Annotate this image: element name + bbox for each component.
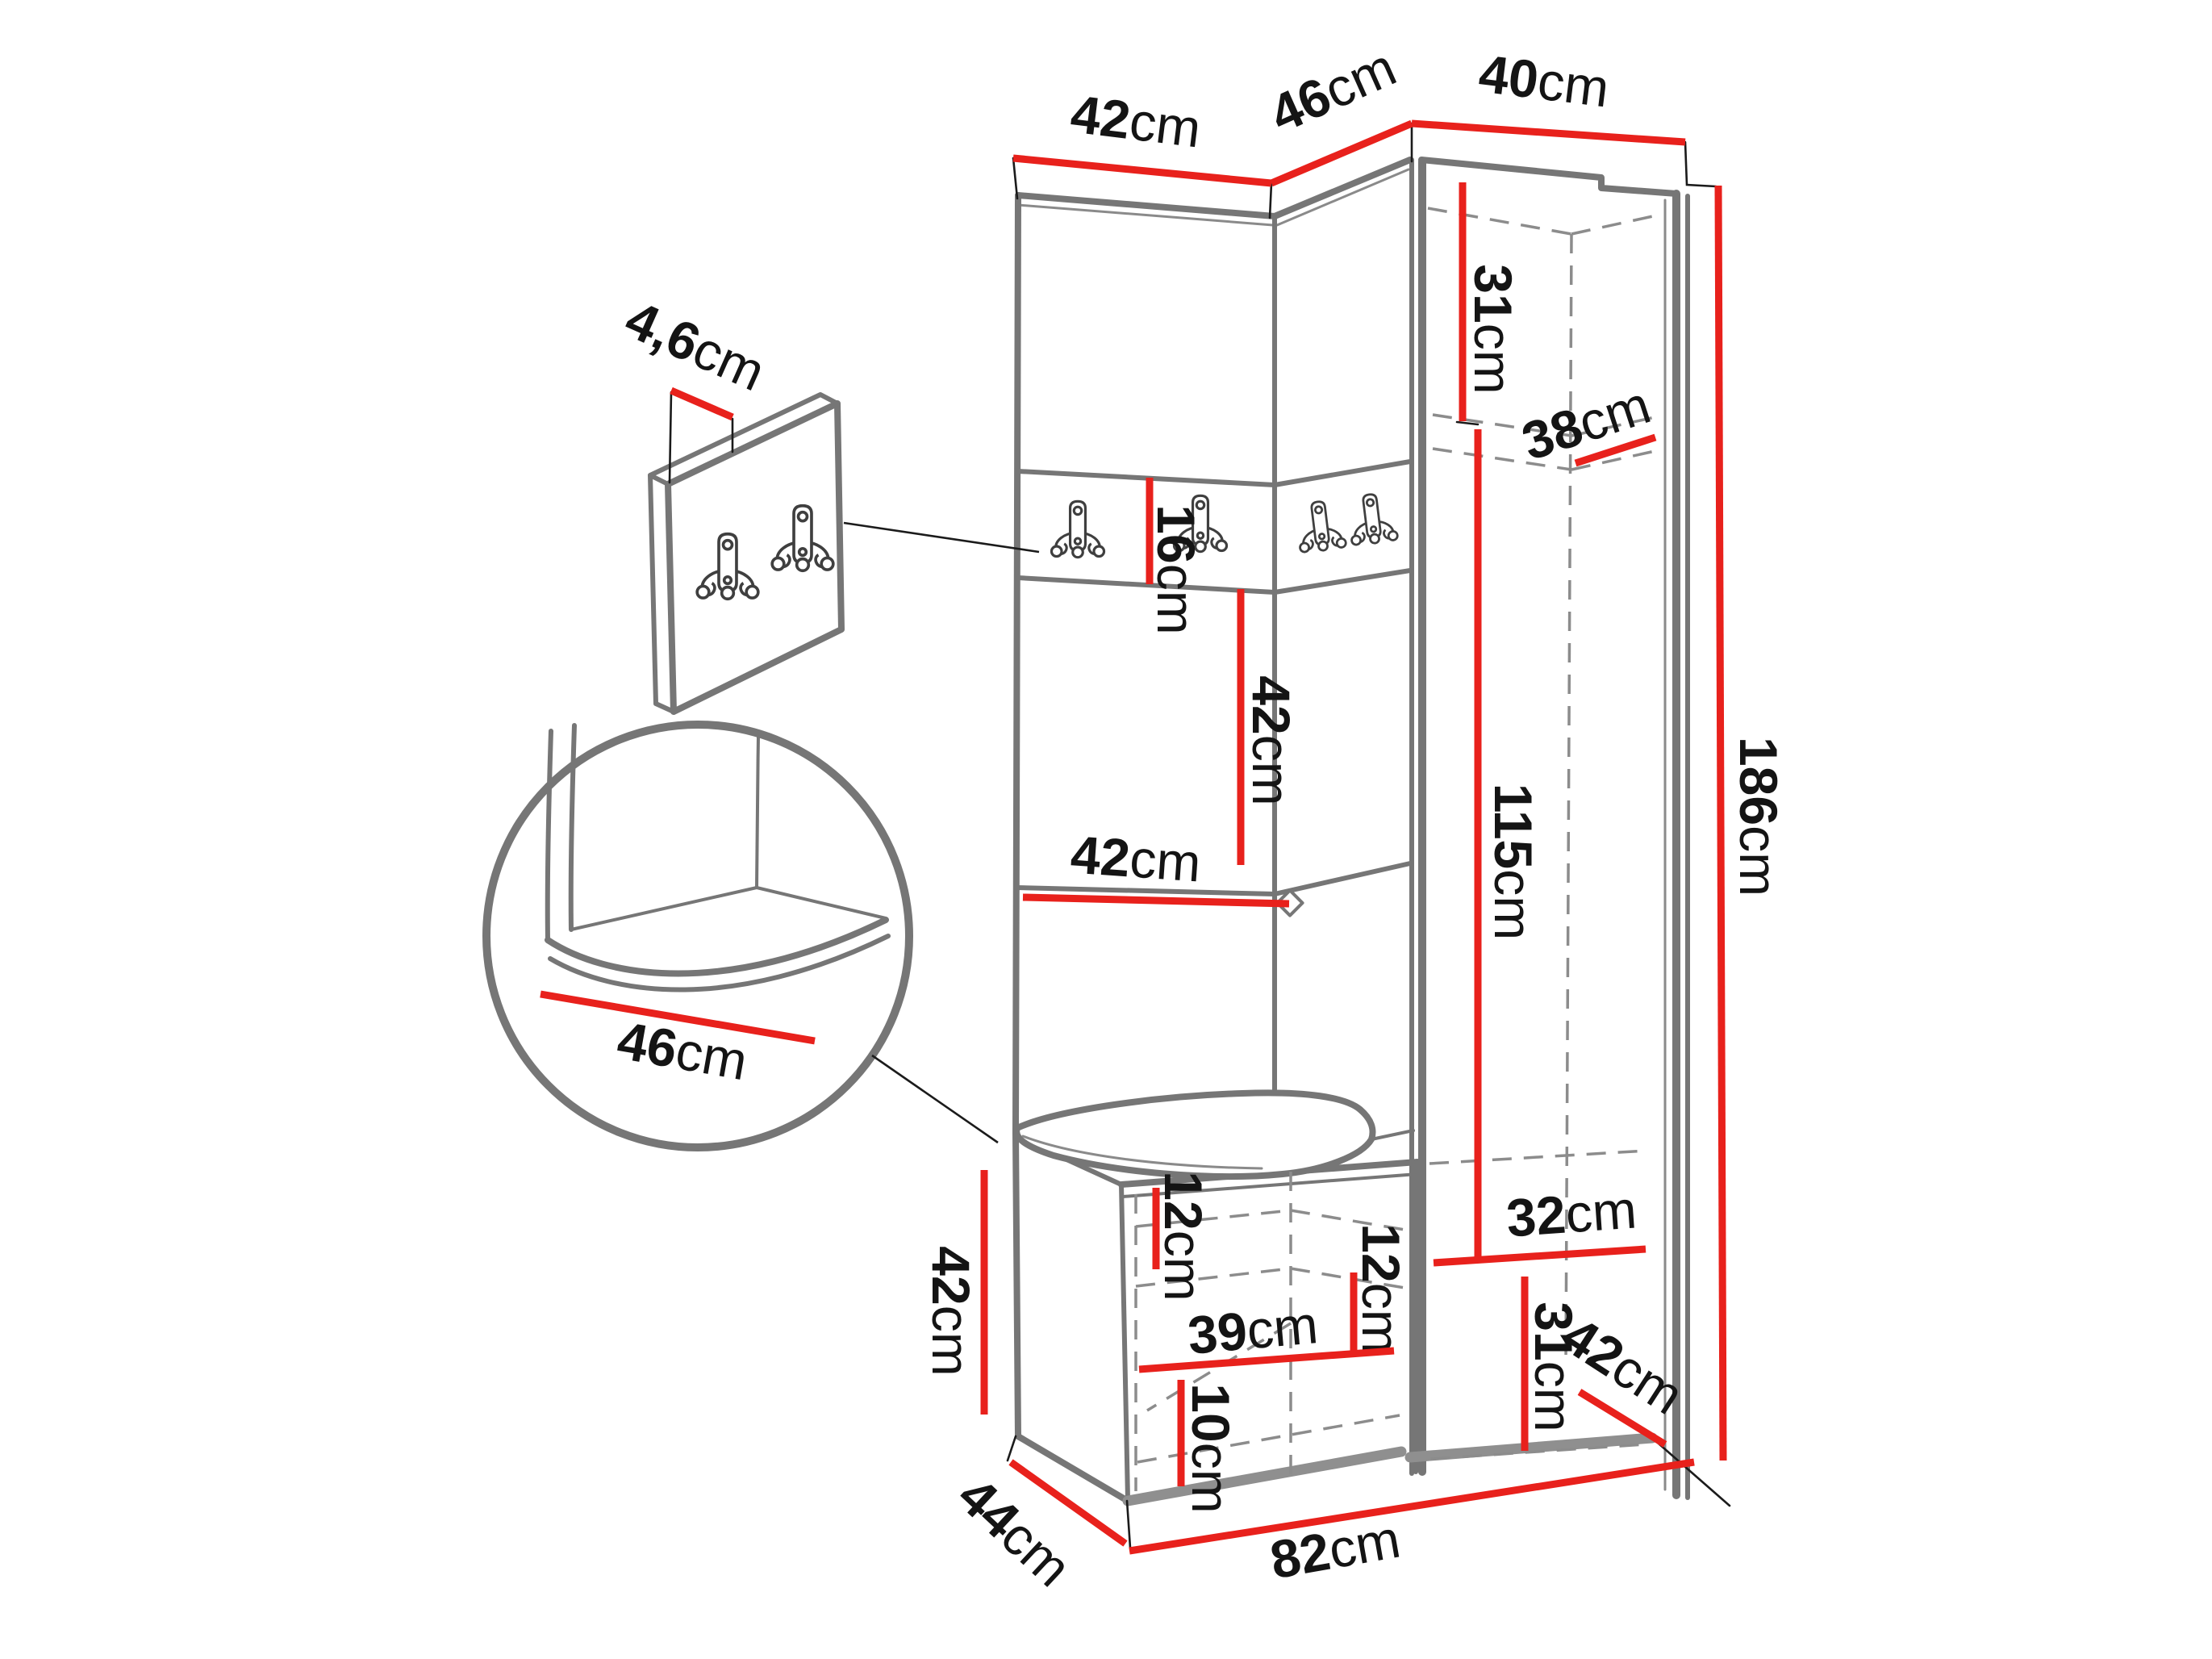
dim-label-panel-42-horizontal: 42cm (1069, 824, 1203, 892)
diagram-page: 42cm46cm40cm31cm38cm115cm186cm16cm42cm42… (0, 0, 2212, 1659)
dim-label-panel-42-vertical: 42cm (1242, 675, 1301, 805)
dim-line-wardrobe-32 (1434, 1249, 1646, 1263)
hook-band-top-line (1018, 462, 1410, 485)
extension-line (1127, 1501, 1130, 1548)
double-hook-icon (1295, 499, 1346, 553)
double-hook-icon (1346, 491, 1398, 545)
dim-label-top-46: 46cm (1261, 36, 1404, 144)
dim-line-hook-panel-4-6 (671, 391, 732, 417)
dim-label-bench-10: 10cm (1181, 1383, 1241, 1513)
dim-label-bench-12-left: 12cm (1154, 1171, 1213, 1301)
wardrobe-bottom-shelf-hidden (1429, 1151, 1647, 1164)
dim-line-panel-42-horizontal (1023, 897, 1289, 904)
extension-line (1013, 158, 1017, 198)
dim-line-height-186 (1718, 186, 1723, 1461)
bench-left-edge (1016, 1133, 1018, 1436)
left-panel-top-edge (1018, 195, 1275, 216)
wardrobe-back-top-left-hidden (1428, 208, 1571, 234)
dim-line-top-42 (1013, 158, 1271, 183)
dim-label-width-82: 82cm (1266, 1509, 1404, 1590)
dim-label-bench-42-height: 42cm (921, 1246, 981, 1376)
wardrobe-bottom-edge (1410, 1438, 1652, 1457)
dim-label-bench-39: 39cm (1185, 1294, 1320, 1365)
double-hook-icon (1051, 501, 1104, 557)
dim-label-wardrobe-31-top: 31cm (1463, 264, 1523, 394)
extension-line (1685, 142, 1716, 186)
left-panel-left-edge (1016, 195, 1018, 1133)
seat-detail-leader-line (872, 1055, 998, 1143)
seat-cushion (1016, 1093, 1372, 1176)
extension-line (1652, 1438, 1730, 1506)
dim-label-wardrobe-115: 115cm (1484, 784, 1543, 940)
wardrobe-back-top-right-hidden (1571, 215, 1660, 234)
corner-panel-top-edge (1275, 160, 1410, 216)
furniture-dimension-diagram: 42cm46cm40cm31cm38cm115cm186cm16cm42cm42… (0, 0, 2212, 1659)
dim-label-height-186: 186cm (1729, 737, 1788, 896)
dim-label-top-40: 40cm (1475, 43, 1612, 118)
dim-label-bench-12-right: 12cm (1351, 1223, 1411, 1353)
dim-label-top-42: 42cm (1067, 83, 1204, 158)
bench-front-left-edge (1121, 1185, 1128, 1499)
hook-panel-inset (650, 395, 1039, 712)
detail-back-corner-edge (757, 737, 758, 888)
bench-bottom-edge (1128, 1452, 1401, 1501)
bench-left-bottom-bevel (1018, 1436, 1128, 1501)
dim-label-wardrobe-32: 32cm (1505, 1179, 1638, 1247)
dim-label-depth-44: 44cm (947, 1465, 1083, 1598)
extension-line (1270, 183, 1271, 218)
extension-line (670, 392, 671, 483)
dim-label-band-16: 16cm (1146, 504, 1206, 634)
dim-label-hook-panel-4-6: 4,6cm (617, 289, 774, 403)
seat-corner-edge (1371, 1130, 1413, 1139)
corner-panel-top-accent (1277, 169, 1409, 225)
hook-band-bottom-line (1018, 570, 1410, 592)
extension-line (1008, 1436, 1016, 1461)
dim-line-top-40 (1412, 123, 1685, 142)
hook-panel-leader-line (844, 523, 1039, 552)
